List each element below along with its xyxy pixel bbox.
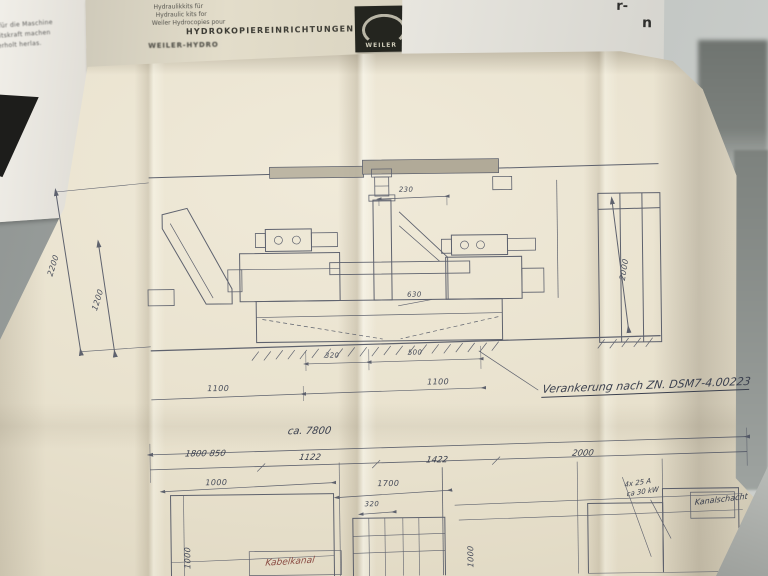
chain-dim-label: 1800 850 [184,449,226,460]
dim-label: 1700 [377,479,399,488]
dim-label: 320 [365,500,380,508]
technical-drawing-layer: 2200 1200 2000 230 630 320 500 1100 1100… [0,0,768,576]
overall-dim-label: ca. 7800 [287,426,332,438]
dim-label: 1000 [205,478,227,487]
dim-label: 630 [407,291,422,299]
dim-label: 1000 [183,547,192,570]
chain-dim-label: 1122 [298,453,321,463]
dim-label: 1100 [207,384,229,393]
photo-of-technical-drawing: e für die Maschine beitskraft machen ede… [0,0,768,576]
dim-label: 1100 [427,377,449,386]
chain-dim-label: 1422 [425,455,448,465]
dim-label: 500 [408,349,423,357]
dim-label: 230 [399,186,414,194]
dim-label: 1000 [466,545,475,568]
dim-label: 320 [325,352,340,360]
chain-dim-label: 2000 [571,448,594,458]
